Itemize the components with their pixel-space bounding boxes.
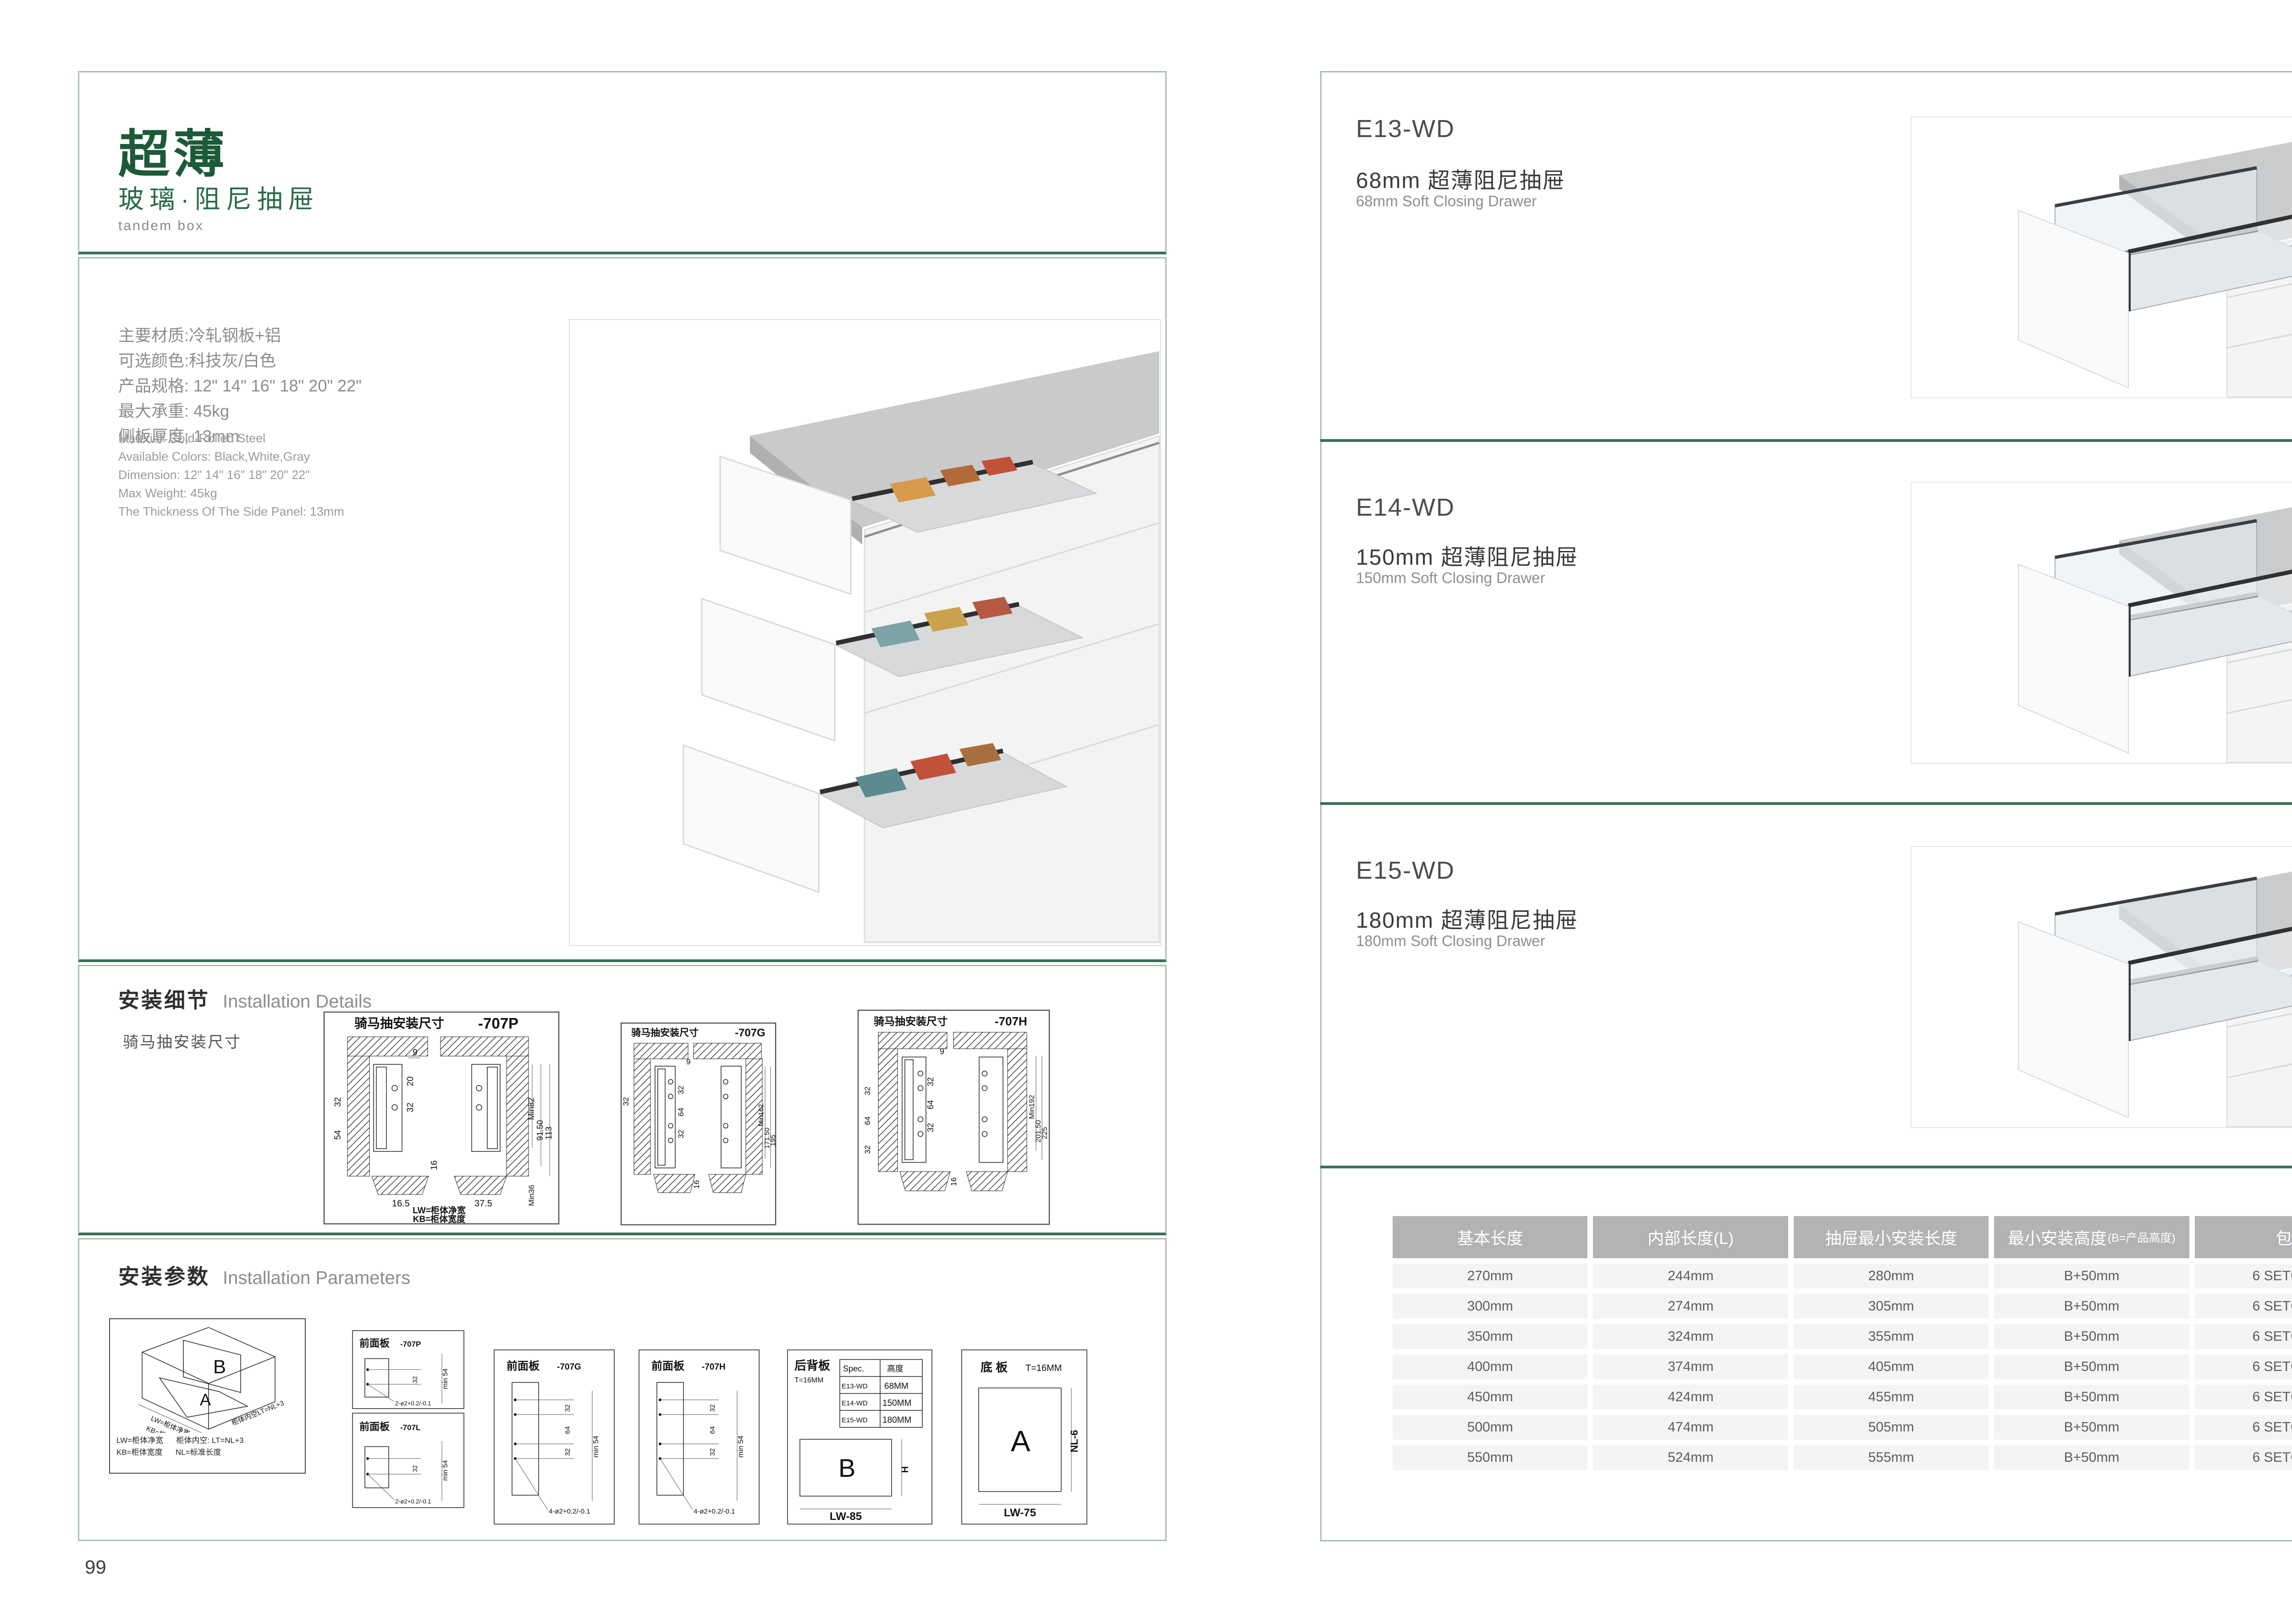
- spec-line: 产品规格: 12" 14" 16" 18" 20" 22": [118, 373, 362, 398]
- dim-label: Min162: [757, 1104, 765, 1126]
- dim-label: Min36: [527, 1185, 536, 1206]
- dim-label: min 54: [441, 1368, 449, 1389]
- dim-label: 225: [1041, 1127, 1049, 1140]
- dim-label: 4-ø2+0.2/-0.1: [549, 1508, 590, 1515]
- spec-col: Spec.: [843, 1364, 864, 1373]
- dim-label: 32: [709, 1404, 716, 1412]
- dim-label: Min82: [527, 1097, 536, 1120]
- dim-label: 32: [677, 1086, 685, 1095]
- spec-line: 最大承重: 45kg: [118, 398, 362, 424]
- diagram-title: 骑马抽安装尺寸: [354, 1016, 444, 1030]
- spec-line: 可选颜色:科技灰/白色: [118, 348, 362, 373]
- section-divider: [1320, 1166, 2292, 1168]
- table-row: 550mm524mm555mmB+50mm6 SETC/TNB: [1393, 1445, 2292, 1470]
- dim-label: 32: [926, 1123, 935, 1132]
- diagram-title: 底 板: [981, 1360, 1008, 1374]
- dim-label: 195: [769, 1134, 777, 1146]
- spec-line: 主要材质:冷轧钢板+铝: [118, 323, 362, 348]
- dim-label: LW=柜体净宽: [413, 1205, 466, 1216]
- dim-label: 9: [413, 1048, 418, 1057]
- dim-label: 9: [686, 1057, 690, 1066]
- back-panel-diagram: 后背板 T=16MM Spec. 高度 E13-WD 68MM E14-WD 1…: [787, 1349, 932, 1525]
- dim-label: 4-ø2+0.2/-0.1: [694, 1508, 735, 1515]
- dim-label: 32: [926, 1077, 935, 1086]
- dim-label: 16.5: [392, 1199, 410, 1209]
- dim-label: 2-ø2+0.2/-0.1: [395, 1498, 431, 1505]
- installation-details-heading: 安装细节Installation Details: [118, 984, 372, 1014]
- dim-label: NL-6: [1069, 1430, 1080, 1453]
- dim-label: T=16MM: [1025, 1363, 1062, 1373]
- col-header: 抽屉最小安装长度: [1794, 1216, 1989, 1258]
- col-header: 包装: [2195, 1216, 2292, 1258]
- svg-text:E15-WD: E15-WD: [842, 1416, 868, 1424]
- spec-line: Dimension: 12" 14" 16" 18" 20" 22": [118, 466, 344, 484]
- dim-label: 16: [692, 1180, 701, 1189]
- table-row: 500mm474mm505mmB+50mm6 SETC/TNB: [1393, 1415, 2292, 1440]
- bottom-panel-diagram: 底 板 T=16MM A NL-6 LW-75: [961, 1349, 1087, 1525]
- dim-label: 32: [411, 1465, 419, 1472]
- panel-b-label: B: [213, 1356, 226, 1377]
- dim-label: 64: [926, 1100, 935, 1109]
- dim-label: 柜体内空LT=NL+3: [231, 1399, 285, 1427]
- page-tagline: tandem box: [118, 218, 204, 234]
- table-row: 350mm324mm355mmB+50mm6 SETC/TNB: [1393, 1324, 2292, 1349]
- installation-parameters-heading: 安装参数Installation Parameters: [118, 1260, 410, 1290]
- spec-list-en: Material: Cold-Rolled Steel Available Co…: [118, 429, 344, 521]
- svg-text:180MM: 180MM: [882, 1415, 911, 1425]
- right-page-box: E13-WD 68mm 超薄阻尼抽屉 68mm Soft Closing Dra…: [1320, 71, 2292, 1541]
- dim-label: min 54: [737, 1436, 745, 1458]
- dim-label: 37.5: [474, 1199, 492, 1209]
- section-divider: [1320, 439, 2292, 442]
- dim-label: 32: [411, 1376, 419, 1383]
- catalog-spread: 超薄 玻璃·阻尼抽屉 tandem box 主要材质:冷轧钢板+铝 可选颜色:科…: [0, 0, 2292, 1624]
- heading-en: Installation Details: [223, 991, 372, 1012]
- product-photo-e13: [1911, 116, 2292, 398]
- dim-label: 32: [333, 1097, 343, 1107]
- diagram-title: 前面板: [359, 1338, 390, 1349]
- dim-label: Min192: [1028, 1095, 1036, 1119]
- dim-label: 16: [949, 1178, 958, 1186]
- spec-line: Max Weight: 45kg: [118, 484, 344, 502]
- dim-label: 32: [406, 1102, 415, 1112]
- dim-label: LW-85: [830, 1510, 862, 1523]
- front-panel-707h-diagram: 前面板 -707H 32 64 32 min 54 4-ø2+0.2/-0.1: [639, 1349, 760, 1525]
- diagram-caption: LW=柜体净宽 柜体内空: LT=NL+3: [116, 1435, 298, 1447]
- dim-label: min 54: [592, 1436, 600, 1458]
- installation-parameters-box: 安装参数Installation Parameters B A LW=柜体净宽 …: [78, 1238, 1167, 1541]
- diagram-title: 骑马抽安装尺寸: [631, 1027, 699, 1038]
- diagram-title: 前面板: [359, 1421, 390, 1432]
- diagram-code: -707G: [557, 1362, 581, 1372]
- dim-label: 32: [622, 1097, 630, 1106]
- product-title-zh-e13: 68mm 超薄阻尼抽屉: [1356, 162, 1565, 194]
- diagram-title: 前面板: [507, 1360, 540, 1372]
- dim-label: 32: [564, 1404, 572, 1412]
- front-panel-707g-diagram: 前面板 -707G 32 64 32 min 54 4-ø2+0.2/-0.1: [494, 1349, 615, 1525]
- diagram-title: 前面板: [651, 1360, 685, 1372]
- table-row: 450mm424mm455mmB+50mm6 SETC/TNB: [1393, 1385, 2292, 1409]
- dim-label: 113: [544, 1127, 553, 1140]
- front-panel-707l-diagram: 前面板 -707L 32 min 54 2-ø2+0.2/-0.1: [352, 1413, 464, 1508]
- dim-label: KB=柜体宽度: [413, 1214, 466, 1224]
- dim-label: 9: [940, 1047, 944, 1056]
- svg-text:E14-WD: E14-WD: [842, 1399, 868, 1407]
- spec-line: The Thickness Of The Side Panel: 13mm: [118, 502, 344, 521]
- svg-text:68MM: 68MM: [884, 1382, 909, 1391]
- table-row: 300mm274mm305mmB+50mm6 SETC/TNB: [1393, 1294, 2292, 1319]
- dim-label: 64: [564, 1426, 572, 1434]
- diagram-707h: 骑马抽安装尺寸 -707H 9 32 64 32 32: [856, 1008, 1051, 1226]
- col-header: 最小安装高度(B=产品高度): [1994, 1216, 2189, 1258]
- dim-label: 91.50: [535, 1120, 545, 1140]
- dim-label: 20: [406, 1076, 415, 1086]
- cabinet-3d-diagram: B A LW=柜体净宽 KB=柜体宽度 柜体内空LT=NL+3 LW=柜体净宽 …: [109, 1318, 306, 1474]
- page-number-left: 99: [85, 1556, 106, 1578]
- product-title-en-e13: 68mm Soft Closing Drawer: [1356, 193, 1537, 210]
- spec-col: 高度: [887, 1364, 904, 1373]
- panel-label: B: [838, 1453, 855, 1482]
- installation-details-box: 安装细节Installation Details 骑马抽安装尺寸 骑马抽安装尺寸…: [78, 965, 1167, 1235]
- dim-label: 2-ø2+0.2/-0.1: [395, 1400, 431, 1407]
- front-panel-707p-diagram: 前面板 -707P 32 min 54 2-ø2+0.2/-0.1: [352, 1330, 464, 1409]
- diagram-caption: KB=柜体宽度 NL=标准长度: [116, 1447, 298, 1459]
- diagram-code: -707P: [478, 1015, 518, 1032]
- diagram-code: -707G: [735, 1027, 766, 1039]
- page-subtitle: 玻璃·阻尼抽屉: [118, 179, 320, 216]
- heading-en: Installation Parameters: [223, 1268, 410, 1288]
- diagram-code: -707L: [400, 1423, 420, 1432]
- dim-label: 16: [430, 1160, 439, 1170]
- panel-label: A: [1011, 1425, 1030, 1458]
- spec-line: Available Colors: Black,White,Gray: [118, 447, 344, 466]
- svg-text:E13-WD: E13-WD: [842, 1382, 868, 1390]
- product-title-en-e15: 180mm Soft Closing Drawer: [1356, 932, 1545, 950]
- diagram-707g: 骑马抽安装尺寸 -707G 9 32 64 32 32: [619, 1021, 777, 1227]
- diagram-code: -707P: [400, 1340, 421, 1349]
- product-title-en-e14: 150mm Soft Closing Drawer: [1356, 569, 1545, 587]
- table-row: 400mm374mm405mmB+50mm6 SETC/TNB: [1393, 1354, 2292, 1379]
- diagram-707p: 骑马抽安装尺寸 -707P 9 20 32 32 54: [322, 1010, 561, 1226]
- dim-label: 64: [863, 1117, 872, 1125]
- table-header-row: 基本长度 内部长度(L) 抽屉最小安装长度 最小安装高度(B=产品高度) 包装: [1393, 1216, 2292, 1258]
- heading-zh: 安装参数: [118, 1265, 210, 1288]
- svg-text:150MM: 150MM: [882, 1398, 911, 1408]
- col-header: 内部长度(L): [1593, 1216, 1788, 1258]
- dim-label: 32: [863, 1087, 872, 1096]
- product-title-zh-e14: 150mm 超薄阻尼抽屉: [1356, 539, 1578, 571]
- spec-line: Material: Cold-Rolled Steel: [118, 429, 344, 447]
- col-header: 基本长度: [1393, 1216, 1587, 1258]
- page-title: 超薄: [118, 113, 228, 187]
- product-title-zh-e15: 180mm 超薄阻尼抽屉: [1356, 902, 1578, 934]
- left-title-box: 超薄 玻璃·阻尼抽屉 tandem box: [78, 71, 1167, 254]
- dim-label: 32: [709, 1448, 716, 1456]
- product-photo-e14: [1911, 482, 2292, 764]
- section-divider: [1320, 802, 2292, 805]
- dim-label: H: [900, 1466, 910, 1473]
- main-product-photo: [569, 319, 1161, 946]
- dim-label: 32: [863, 1145, 872, 1154]
- dim-label: T=16MM: [794, 1376, 824, 1384]
- diagram-title: 骑马抽安装尺寸: [874, 1015, 948, 1027]
- dim-label: 64: [677, 1108, 685, 1117]
- dim-label: 32: [564, 1448, 572, 1456]
- product-photo-e15: [1911, 846, 2292, 1128]
- product-code-e15: E15-WD: [1356, 856, 1455, 885]
- heading-zh: 安装细节: [118, 988, 210, 1012]
- product-code-e14: E14-WD: [1356, 493, 1455, 522]
- dim-label: 54: [333, 1130, 343, 1140]
- diagram-title: 后背板: [794, 1359, 830, 1372]
- table-row: 270mm244mm280mmB+50mm6 SETC/TNB: [1393, 1264, 2292, 1288]
- dim-label: min 54: [441, 1460, 449, 1481]
- dim-label: 32: [677, 1130, 685, 1139]
- details-subheading: 骑马抽安装尺寸: [123, 1029, 242, 1052]
- diagram-code: -707H: [702, 1362, 726, 1372]
- panel-a-label: A: [200, 1390, 211, 1409]
- dim-label: LW-75: [1004, 1507, 1036, 1519]
- spec-table: 基本长度 内部长度(L) 抽屉最小安装长度 最小安装高度(B=产品高度) 包装 …: [1393, 1216, 2292, 1475]
- dim-label: 64: [709, 1426, 716, 1434]
- left-overview-box: 主要材质:冷轧钢板+铝 可选颜色:科技灰/白色 产品规格: 12" 14" 16…: [78, 257, 1167, 962]
- product-code-e13: E13-WD: [1356, 115, 1455, 143]
- diagram-code: -707H: [995, 1014, 1027, 1028]
